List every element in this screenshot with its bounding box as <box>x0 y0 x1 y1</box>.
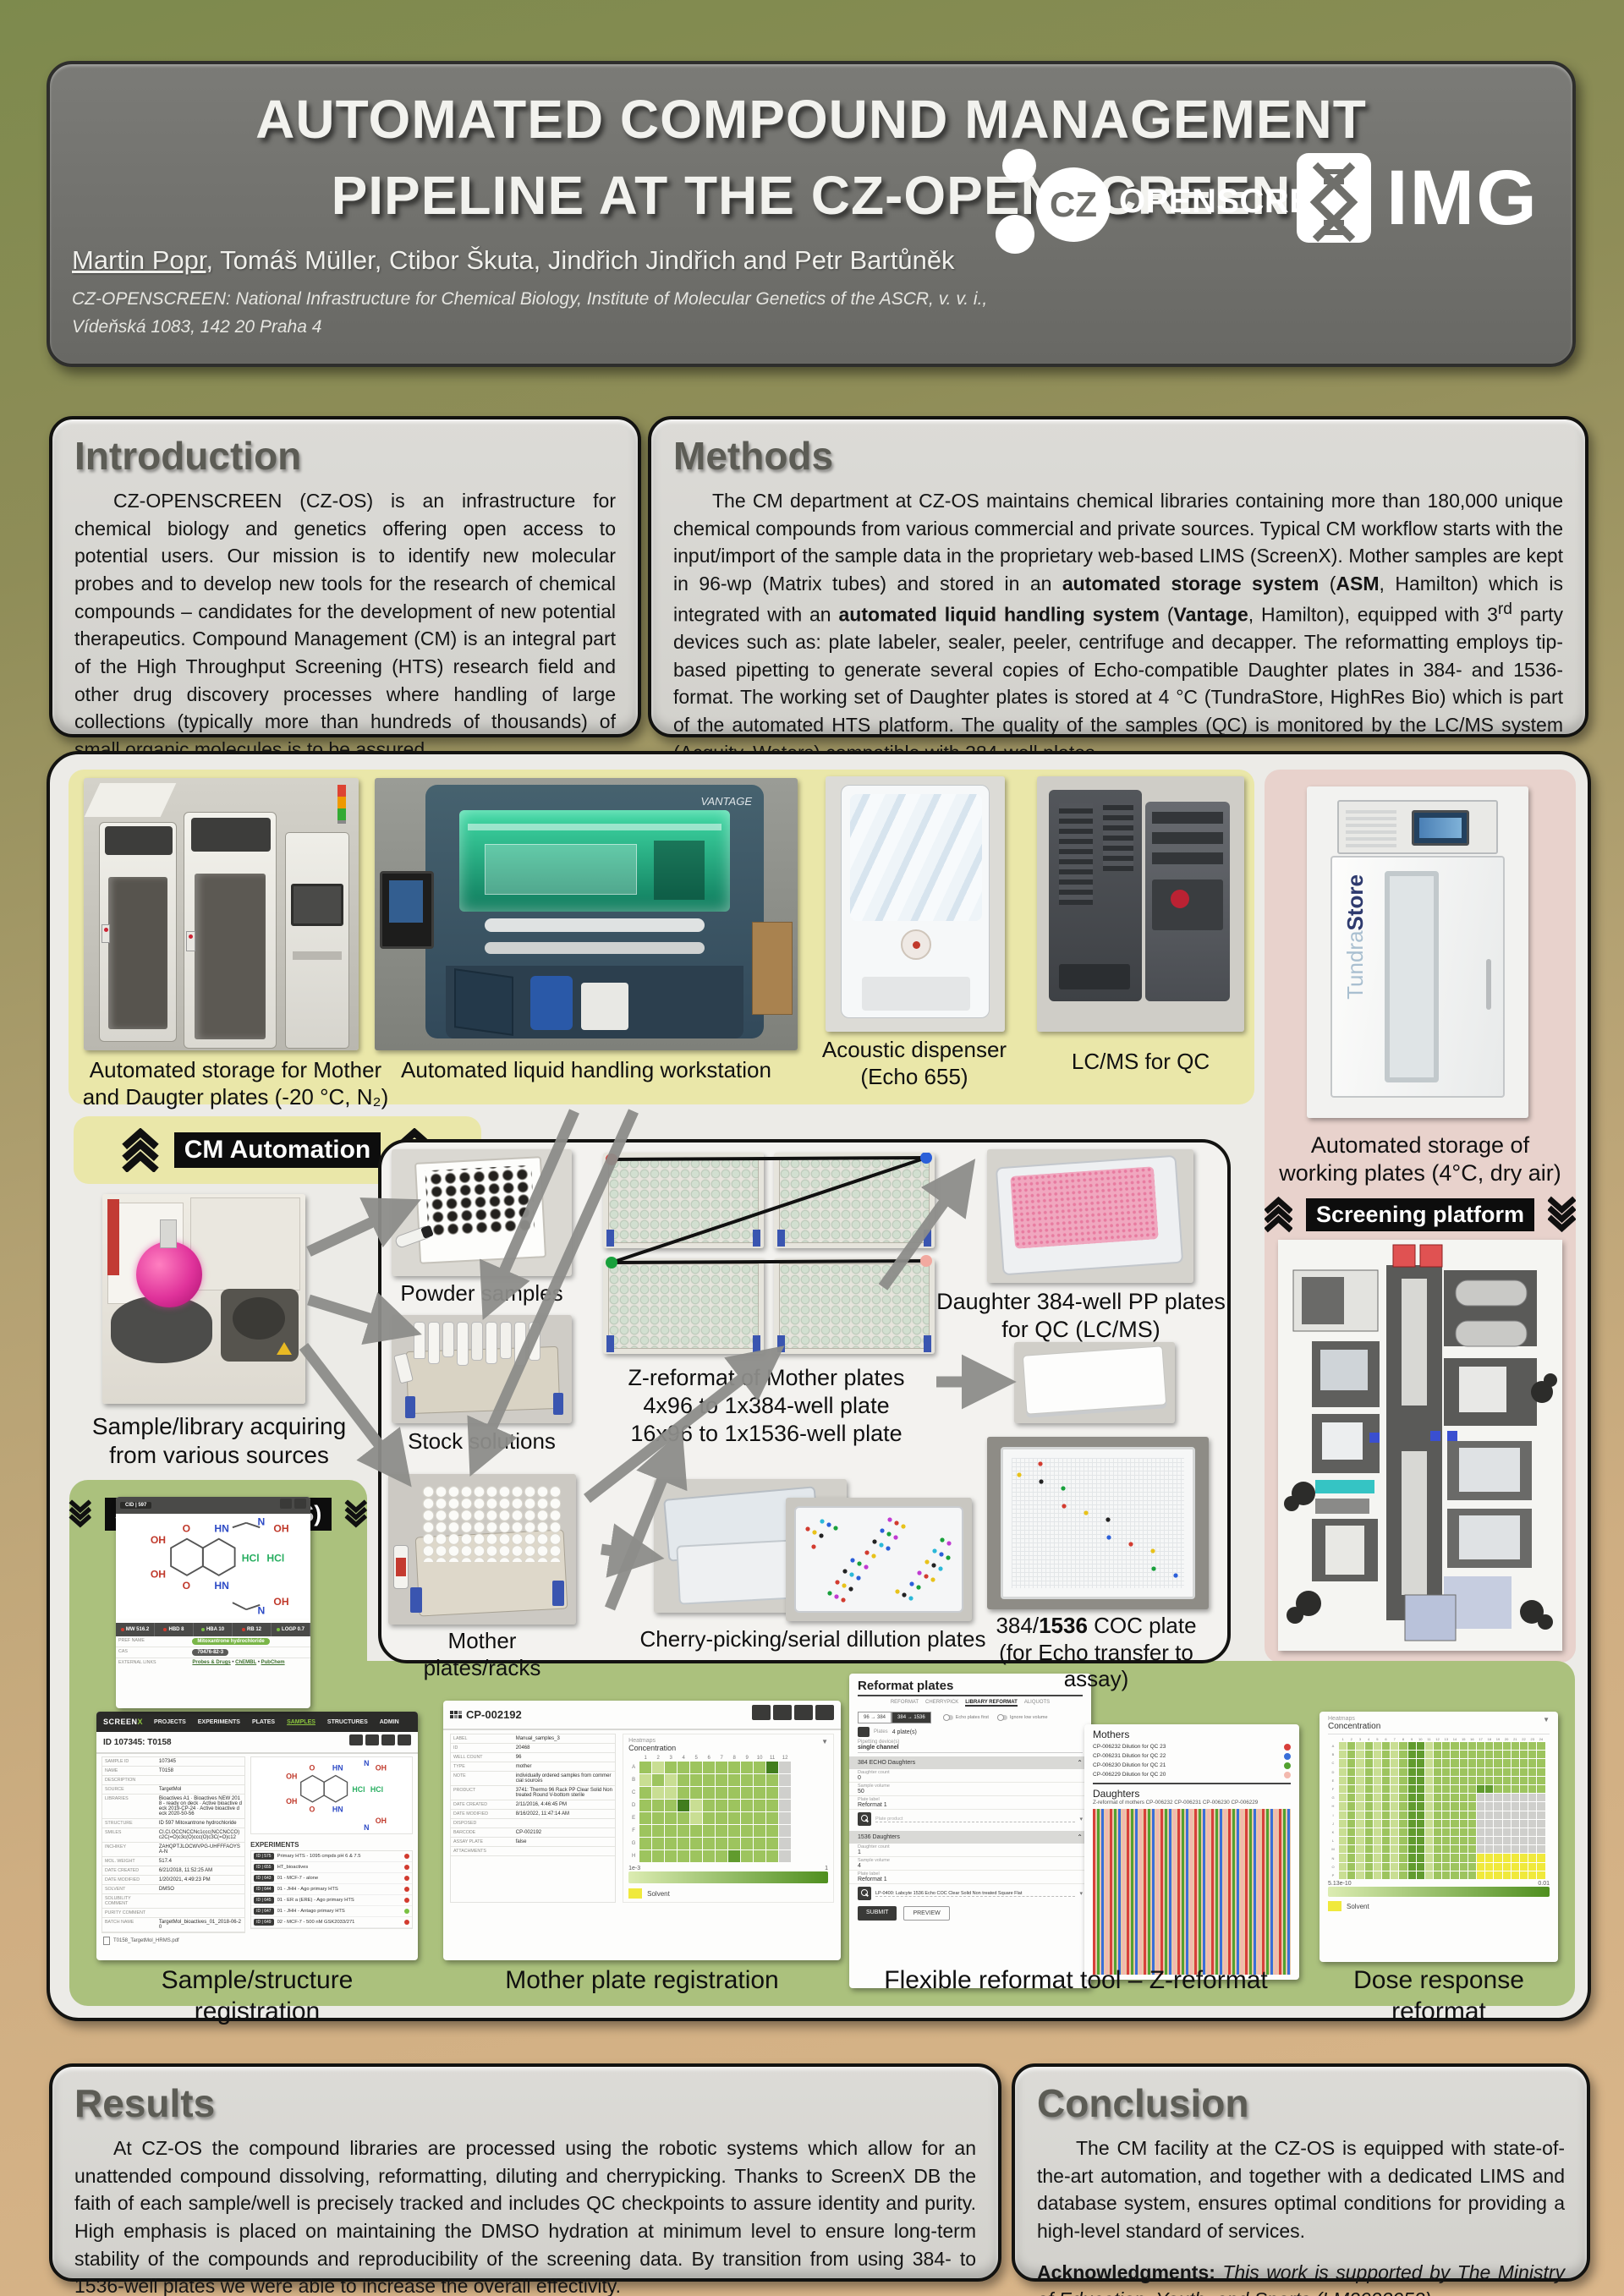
section-header[interactable]: 384 ECHO Daughters⌃ <box>849 1756 1091 1769</box>
reformat-tab[interactable]: CHERRYPICK <box>925 1700 958 1707</box>
dilution-dots <box>801 1511 957 1608</box>
preview-button[interactable]: PREVIEW <box>903 1906 949 1921</box>
heatmap-cell <box>1399 1751 1407 1758</box>
heatmap-cell <box>1417 1828 1424 1836</box>
row-header: J <box>1328 1820 1338 1827</box>
heatmap-cell <box>728 1800 740 1811</box>
well-dot <box>850 1558 854 1562</box>
heatmap-cell <box>1399 1794 1407 1801</box>
heatmap-cell <box>1399 1845 1407 1853</box>
heatmap-cell <box>1434 1837 1441 1844</box>
heatmap-cell <box>1382 1777 1390 1784</box>
heatmap-cell <box>1408 1828 1416 1836</box>
well-dot <box>1106 1535 1111 1539</box>
scale-max: 1 <box>825 1866 828 1871</box>
heatmap-cell <box>665 1762 677 1773</box>
heatmap-cell <box>1356 1811 1363 1819</box>
expand-icon[interactable] <box>294 1499 306 1509</box>
heatmap-cell <box>690 1812 702 1824</box>
nav-item-samples[interactable]: SAMPLES <box>284 1718 318 1727</box>
daughters-grid <box>1093 1809 1291 1975</box>
dose-scale-min: 5.13e-10 <box>1328 1881 1352 1887</box>
well-dot <box>848 1586 853 1591</box>
dose-heatmap: 123456789101112131415161718192021222324A… <box>1328 1737 1550 1879</box>
heatmap-cell <box>716 1774 727 1786</box>
heatmap-cell <box>1494 1785 1501 1793</box>
heatmap-cell <box>690 1825 702 1837</box>
heatmap-filter-icon[interactable]: ▼ <box>821 1738 828 1752</box>
heatmap-cell <box>1528 1802 1536 1810</box>
heatmap-cell <box>1434 1863 1441 1871</box>
heatmap-cell <box>1512 1802 1519 1810</box>
heatmap-cell <box>779 1787 791 1799</box>
heatmap-cell <box>1399 1785 1407 1793</box>
toggle-echo-plates-first[interactable]: Echo plates first <box>943 1715 989 1720</box>
heatmap-cell <box>1425 1802 1433 1810</box>
heatmap-cell <box>1468 1854 1476 1861</box>
heatmap-cell <box>665 1825 677 1837</box>
row-header: B <box>1328 1751 1338 1758</box>
plate-field-row: WELL COUNT96 <box>451 1753 615 1762</box>
external-links: Probes & Drugs • ChEMBL • PubChem <box>189 1658 310 1667</box>
heatmap-cell <box>1477 1759 1484 1767</box>
heatmap-cell <box>1408 1751 1416 1758</box>
heatmap-cell <box>716 1800 727 1811</box>
plate-toolbar[interactable] <box>749 1705 834 1724</box>
heatmap-cell <box>1528 1785 1536 1793</box>
caption-cherry: Cherry-picking/serial dillution plates <box>635 1626 990 1653</box>
heatmap-cell <box>1477 1785 1484 1793</box>
heatmap-cell <box>1365 1837 1373 1844</box>
heatmap-cell <box>1374 1768 1381 1776</box>
heatmap-cell <box>1520 1837 1528 1844</box>
heatmap-cell <box>1442 1794 1450 1801</box>
well-dot <box>841 1597 845 1602</box>
legend-dot <box>1284 1753 1291 1760</box>
introduction-body: CZ-OPENSCREEN (CZ-OS) is an infrastructu… <box>74 487 616 764</box>
heatmap-cell <box>1528 1845 1536 1853</box>
plates-label: Plates <box>874 1729 888 1734</box>
heatmap-cell <box>652 1787 664 1799</box>
heatmap-cell <box>1485 1828 1493 1836</box>
heatmap-cell <box>1468 1794 1476 1801</box>
heatmap-cell <box>1356 1785 1363 1793</box>
cid-badge: CID | 597 <box>120 1502 151 1509</box>
heatmap-cell <box>1494 1768 1501 1776</box>
plate-field-row: BARCODECP-002192 <box>451 1828 615 1838</box>
heatmap-cell <box>1391 1794 1398 1801</box>
conclusion-heading: Conclusion <box>1037 2080 1565 2126</box>
plate-barcode-title: CP-002192 <box>466 1708 522 1721</box>
heatmap-cell <box>1417 1837 1424 1844</box>
heatmap-cell <box>1451 1742 1458 1750</box>
metric-mw: MW 516.2 <box>116 1623 155 1636</box>
solvent-label: Solvent <box>647 1890 670 1898</box>
heatmap-subtitle: Concentration <box>628 1744 676 1752</box>
heatmap-cell <box>1451 1811 1458 1819</box>
reformat-tab[interactable]: REFORMAT <box>891 1700 919 1707</box>
edit-icon[interactable] <box>280 1499 292 1509</box>
dose-heatmap-subtitle: Concentration <box>1328 1722 1380 1731</box>
heatmap-cell <box>1391 1759 1398 1767</box>
heatmap-cell <box>1442 1742 1450 1750</box>
col-header: 9 <box>741 1756 753 1761</box>
svg-text:O: O <box>310 1806 315 1814</box>
heatmap-cell <box>1528 1768 1536 1776</box>
heatmap-cell <box>1382 1742 1390 1750</box>
heatmap-cell <box>1460 1837 1468 1844</box>
heatmap-cell <box>728 1762 740 1773</box>
col-header: 14 <box>1451 1737 1458 1741</box>
section-field[interactable]: Plate labelReformat 1 <box>849 1871 1091 1884</box>
col-header: 21 <box>1512 1737 1519 1741</box>
col-header: 11 <box>766 1756 778 1761</box>
heatmap-cell <box>1451 1863 1458 1871</box>
heatmap-cell <box>1485 1794 1493 1801</box>
experiment-row[interactable]: ID | 655HT_bioactives <box>251 1862 412 1873</box>
heatmap-cell <box>741 1787 753 1799</box>
heatmap-cell <box>741 1838 753 1849</box>
metric-rb: RB 12 <box>233 1623 272 1636</box>
lims-screens-panel: SCREENX PROJECTSEXPERIMENTSPLATESSAMPLES… <box>69 1661 1575 2006</box>
heatmap-cell <box>1468 1811 1476 1819</box>
screening-panel: TundraStore Automated storage ofworking … <box>1265 770 1576 1663</box>
section-field[interactable]: Daughter count1 <box>849 1844 1091 1857</box>
experiment-row[interactable]: ID | 64301 - MCF-7 - alone <box>251 1873 412 1884</box>
daughters-title: Daughters <box>1084 1786 1299 1800</box>
heatmap-cell <box>1339 1845 1347 1853</box>
heatmap-cell <box>1374 1811 1381 1819</box>
heatmap-cell <box>1347 1811 1355 1819</box>
heatmap-cell <box>1503 1854 1511 1861</box>
caption-sample-registration: Sample/structure registration <box>96 1965 418 2027</box>
plate-field-row: LABELManual_samples_3 <box>451 1734 615 1744</box>
heatmap-cell <box>1477 1837 1484 1844</box>
pref-name-label: PREF NAME <box>116 1636 189 1647</box>
plate-product-search[interactable]: LP-0400: Labcyte 1536 Echo COC Clear Sol… <box>849 1884 1091 1903</box>
heatmap-cell <box>1356 1742 1363 1750</box>
heatmap-cell <box>1494 1751 1501 1758</box>
svg-text:HN: HN <box>332 1764 343 1773</box>
heatmap-cell <box>1365 1845 1373 1853</box>
heatmap-cell <box>1477 1845 1484 1853</box>
heatmap-cell <box>1442 1837 1450 1844</box>
svg-text:HCl: HCl <box>266 1553 284 1564</box>
z-path-overlay <box>603 1153 935 1356</box>
heatmap-cell <box>1417 1802 1424 1810</box>
svg-text:OH: OH <box>273 1523 288 1535</box>
edit-plates-icon[interactable] <box>858 1727 870 1737</box>
attachment-link[interactable]: T0158_TargetMol_HRMS.pdf <box>113 1938 179 1943</box>
cz-logo-small-circle-1 <box>1002 149 1036 183</box>
text-segment: Vantage <box>1174 603 1248 625</box>
col-header: 2 <box>1347 1737 1355 1741</box>
well-dot <box>924 1574 928 1578</box>
heatmap-cell <box>728 1787 740 1799</box>
section-field[interactable]: Plate labelReformat 1 <box>849 1796 1091 1810</box>
sample-field-row: INCHIKEYZAHQPTJLOCWVPG-UHFFFAOYSA-N <box>102 1843 244 1857</box>
well-dot <box>872 1539 876 1543</box>
heatmap-cell <box>766 1800 778 1811</box>
well-dot <box>1128 1542 1133 1546</box>
heatmap-cell <box>1537 1854 1544 1861</box>
heatmap-cell <box>1537 1828 1544 1836</box>
well-dot <box>939 1552 943 1556</box>
sample-fields: SAMPLE ID107345NAMET0158DESCRIPTIONSOURC… <box>101 1756 245 1933</box>
heatmap-cell <box>1503 1759 1511 1767</box>
section-field[interactable]: Sample volume4 <box>849 1857 1091 1871</box>
heatmap-cell <box>1512 1845 1519 1853</box>
well-dot <box>901 1524 905 1528</box>
heatmap-cell <box>754 1825 765 1837</box>
heatmap-cell <box>1339 1820 1347 1827</box>
well-dot <box>932 1548 936 1553</box>
well-dot <box>834 1594 838 1598</box>
heatmap-cell <box>1520 1794 1528 1801</box>
section-field[interactable]: Daughter count0 <box>849 1769 1091 1783</box>
plate-product-search[interactable]: Plate product▾ <box>849 1810 1091 1828</box>
col-header: 15 <box>1460 1737 1468 1741</box>
plate-field-row: ID20468 <box>451 1744 615 1753</box>
heatmap-cell <box>1451 1794 1458 1801</box>
heatmap-cell <box>1485 1871 1493 1879</box>
photo-automated-storage <box>84 778 359 1050</box>
experiment-row[interactable]: ID | 64501 - ER a (ERE) - Ago primary HT… <box>251 1895 412 1906</box>
mothers-title: Mothers <box>1084 1724 1299 1740</box>
photo-stock-solutions <box>392 1315 572 1423</box>
heatmap-cell <box>1485 1854 1493 1861</box>
submit-button[interactable]: SUBMIT <box>858 1906 897 1921</box>
heatmap-cell <box>1528 1777 1536 1784</box>
heatmap-cell <box>779 1850 791 1862</box>
heatmap-cell <box>690 1850 702 1862</box>
nav-item-projects[interactable]: PROJECTS <box>151 1718 189 1727</box>
heatmap-cell <box>1537 1759 1544 1767</box>
experiment-row[interactable]: ID | 64701 - JHH - Antago primary HTS <box>251 1906 412 1917</box>
well-dot <box>835 1580 839 1584</box>
experiment-row[interactable]: ID | 64401 - JHH - Ago primary HTS <box>251 1884 412 1895</box>
heatmap-cell <box>1477 1871 1484 1879</box>
heatmap-cell <box>1528 1828 1536 1836</box>
svg-text:O: O <box>183 1580 190 1592</box>
heatmap-cell <box>754 1787 765 1799</box>
record-title: ID 107345: T0158 <box>103 1738 172 1747</box>
heatmap-cell <box>1365 1854 1373 1861</box>
heatmap-cell <box>1382 1811 1390 1819</box>
heatmap-cell <box>1417 1820 1424 1827</box>
heatmap-cell <box>1434 1759 1441 1767</box>
reformat-tab[interactable]: LIBRARY REFORMAT <box>965 1700 1018 1707</box>
nav-item-plates[interactable]: PLATES <box>250 1718 277 1727</box>
heatmap-cell <box>1460 1768 1468 1776</box>
external-link[interactable]: Probes & Drugs <box>192 1660 230 1665</box>
heatmap-cell <box>1365 1871 1373 1879</box>
dose-solvent-label: Solvent <box>1347 1903 1369 1910</box>
col-header: 7 <box>716 1756 727 1761</box>
col-header: 3 <box>665 1756 677 1761</box>
legend-dot <box>1284 1772 1291 1778</box>
heatmap-cell <box>779 1825 791 1837</box>
heatmap-cell <box>678 1838 689 1849</box>
heatmap-cell <box>1425 1785 1433 1793</box>
tundrastore-body: TundraStore <box>1330 856 1505 1098</box>
heatmap-cell <box>639 1787 651 1799</box>
heatmap-cell <box>1356 1837 1363 1844</box>
heatmap-cell <box>1512 1742 1519 1750</box>
heatmap-cell <box>1434 1785 1441 1793</box>
heatmap-cell <box>1520 1820 1528 1827</box>
heatmap-cell <box>1347 1777 1355 1784</box>
affiliation-line1: CZ-OPENSCREEN: National Infrastructure f… <box>72 286 987 314</box>
heatmap-cell <box>1537 1794 1544 1801</box>
plate-field-row: ASSAY PLATEfalse <box>451 1838 615 1847</box>
well-dot <box>908 1596 913 1600</box>
heatmap-cell <box>1451 1854 1458 1861</box>
heatmap-cell <box>1339 1871 1347 1879</box>
heatmap-cell <box>639 1774 651 1786</box>
heatmap-cell <box>1382 1863 1390 1871</box>
heatmap-cell <box>1520 1785 1528 1793</box>
heatmap-cell <box>1528 1820 1536 1827</box>
nav-item-experiments[interactable]: EXPERIMENTS <box>195 1718 243 1727</box>
heatmap-cell <box>1382 1802 1390 1810</box>
nav-item-admin[interactable]: ADMIN <box>377 1718 402 1727</box>
heatmap-cell <box>678 1774 689 1786</box>
chevrons-up-icon <box>122 1128 159 1172</box>
heatmap-cell <box>1374 1828 1381 1836</box>
section-field[interactable]: Sample volume50 <box>849 1783 1091 1796</box>
heatmap-cell <box>1485 1863 1493 1871</box>
heatmap-cell <box>1512 1820 1519 1827</box>
heatmap-cell <box>639 1812 651 1824</box>
heatmap-cell <box>1391 1845 1398 1853</box>
heatmap-cell <box>1503 1811 1511 1819</box>
col-header: 2 <box>652 1756 664 1761</box>
reformat-tab[interactable]: ALIQUOTS <box>1024 1700 1050 1707</box>
record-toolbar[interactable] <box>347 1734 411 1750</box>
plate-heatmap: 123456789101112ABCDEFGH <box>628 1756 828 1862</box>
text-segment: 1536 <box>1039 1613 1088 1638</box>
poster: AUTOMATED COMPOUND MANAGEMENT PIPELINE A… <box>0 0 1624 2296</box>
well-dot <box>917 1570 921 1575</box>
plate-field-row: NOTEindividually ordered samples from co… <box>451 1772 615 1786</box>
photo-acoustic-dispenser <box>826 776 1005 1032</box>
heatmap-cell <box>1391 1785 1398 1793</box>
external-link[interactable]: ChEMBL <box>235 1660 256 1665</box>
img-logo: IMG <box>1295 139 1549 257</box>
heatmap-cell <box>1468 1759 1476 1767</box>
well-dot <box>849 1572 853 1576</box>
heatmap-cell <box>1477 1768 1484 1776</box>
heatmap-cell <box>652 1762 664 1773</box>
row-header: C <box>1328 1759 1338 1767</box>
pref-name-pill[interactable]: Mitoxantrone hydrochloride <box>192 1638 269 1645</box>
row-header: H <box>1328 1802 1338 1810</box>
img-logo-wordmark: IMG <box>1386 154 1539 243</box>
heatmap-cell <box>1442 1785 1450 1793</box>
heatmap-cell <box>1391 1811 1398 1819</box>
heatmap-cell <box>1356 1802 1363 1810</box>
heatmap-cell <box>1382 1837 1390 1844</box>
plate-field-row: DATE MODIFIED8/16/2022, 11:47:14 AM <box>451 1810 615 1819</box>
heatmap-cell <box>1382 1785 1390 1793</box>
affiliation: CZ-OPENSCREEN: National Infrastructure f… <box>72 286 987 341</box>
heatmap-cell <box>1442 1768 1450 1776</box>
caption-lcms: LC/MS for QC <box>1037 1049 1244 1076</box>
heatmap-cell <box>1485 1759 1493 1767</box>
heatmap-cell <box>1339 1751 1347 1758</box>
heatmap-cell <box>1494 1845 1501 1853</box>
heatmap-cell <box>1374 1863 1381 1871</box>
heatmap-cell <box>779 1762 791 1773</box>
well-dot <box>1017 1472 1021 1477</box>
mother-legend-row: CP-006230 Dilution for QC 21 <box>1093 1761 1291 1770</box>
toggle-ignore-low-volume[interactable]: Ignore low volume <box>997 1715 1048 1720</box>
mother-plate-screenshot: CP-002192 LABELManual_samples_3ID20468WE… <box>443 1701 841 1960</box>
heatmap-cell <box>1374 1759 1381 1767</box>
section-header[interactable]: 1536 Daughters⌃ <box>849 1831 1091 1844</box>
heatmap-cell <box>1494 1802 1501 1810</box>
heatmap-cell <box>1408 1820 1416 1827</box>
heatmap-cell <box>1408 1871 1416 1879</box>
heatmap-cell <box>1537 1802 1544 1810</box>
section-conclusion: Conclusion The CM facility at the CZ-OS … <box>1012 2063 1590 2282</box>
heatmap-cell <box>678 1812 689 1824</box>
experiment-row[interactable]: ID | 64902 - MCF-7 - 500 nM GSK2033/271 <box>251 1917 412 1928</box>
heatmap-cell <box>1468 1777 1476 1784</box>
svg-text:OH: OH <box>151 1534 166 1546</box>
heatmap-cell <box>1520 1871 1528 1879</box>
mode-button[interactable]: 96 → 384 <box>858 1712 892 1723</box>
heatmap-cell <box>1382 1820 1390 1827</box>
heatmap-cell <box>1528 1794 1536 1801</box>
external-link[interactable]: PubChem <box>261 1660 285 1665</box>
well-dot <box>886 1546 890 1550</box>
experiment-row[interactable]: ID | 575Primary HTS - 1095 cmpds pH 6 & … <box>251 1851 412 1862</box>
well-dot <box>826 1522 831 1526</box>
well-dot <box>946 1555 950 1559</box>
well-dot <box>864 1550 869 1554</box>
mode-button[interactable]: 384 → 1536 <box>892 1712 931 1723</box>
workflow-panel: Powder samples Stock solutions Mothe <box>378 1139 1231 1663</box>
heatmap-cell <box>1399 1828 1407 1836</box>
col-header: 20 <box>1503 1737 1511 1741</box>
heatmap-cell <box>1520 1863 1528 1871</box>
heatmap-cell <box>1512 1751 1519 1758</box>
well-dot <box>902 1592 906 1597</box>
well-dot <box>842 1569 847 1573</box>
text-segment: 384/ <box>996 1613 1039 1638</box>
heatmap-cell <box>1347 1854 1355 1861</box>
tundra-label-bold: Store <box>1342 874 1368 930</box>
heatmap-cell <box>690 1787 702 1799</box>
heatmap-cell <box>1520 1828 1528 1836</box>
heatmap-cell <box>1365 1759 1373 1767</box>
heatmap-cell <box>639 1825 651 1837</box>
solvent-swatch <box>628 1888 642 1899</box>
heatmap-cell <box>1537 1751 1544 1758</box>
text-segment: rd <box>1498 600 1512 618</box>
experiments-title: EXPERIMENTS <box>250 1841 413 1849</box>
heatmap-cell <box>1537 1871 1544 1879</box>
heatmap-cell <box>665 1774 677 1786</box>
heatmap-cell <box>728 1838 740 1849</box>
nav-item-structures[interactable]: STRUCTURES <box>325 1718 370 1727</box>
heatmap-cell <box>741 1850 753 1862</box>
heatmap-cell <box>1434 1742 1441 1750</box>
dose-filter-icon[interactable]: ▼ <box>1543 1716 1550 1731</box>
row-header: H <box>628 1850 639 1862</box>
